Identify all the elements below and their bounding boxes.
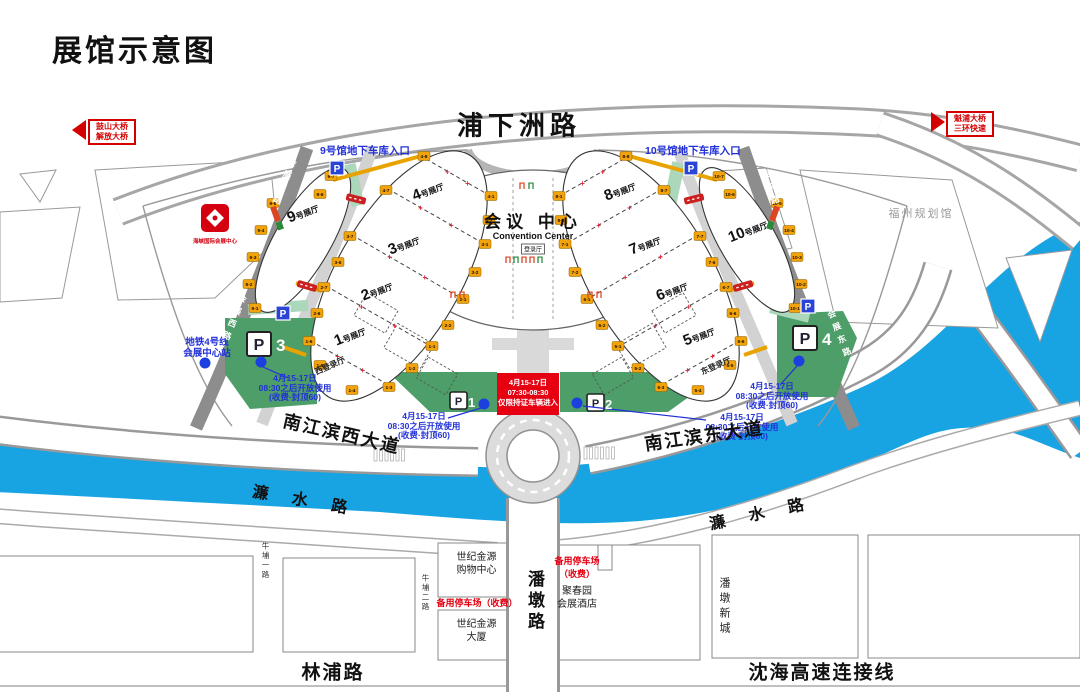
svg-text:Π: Π — [459, 290, 466, 300]
gate-tag: 4-7 — [380, 186, 392, 195]
gate-tag-number: 9-1 — [252, 306, 259, 312]
metro-line: 会展中心站 — [183, 348, 231, 359]
svg-text:Π: Π — [505, 255, 512, 265]
gate-tag: 8-7 — [658, 186, 670, 195]
convention-center-en: Convention Center — [493, 231, 574, 241]
gate-tag-number: 10-7 — [714, 174, 724, 180]
gate-tag: 10-2 — [795, 280, 807, 289]
building-tower: 世纪金源 大厦 — [438, 618, 515, 644]
p-lot-icon: P — [455, 396, 462, 408]
p-entrance-icon: P — [805, 302, 812, 313]
page-title: 展馆示意图 — [52, 26, 217, 70]
gate-tag-number: 7-7 — [697, 234, 704, 240]
gate-tag-number: 2-2 — [445, 323, 452, 329]
crossing-mark: + — [392, 321, 397, 330]
gate-tag: 1-3 — [383, 383, 395, 392]
gate-tag: 8-1 — [553, 192, 565, 201]
p-entrance-icon: P — [688, 164, 695, 175]
note-line: (收费·封顶60) — [717, 401, 827, 411]
p-entrance-icon: P — [280, 309, 287, 320]
gate-tag: 5-6 — [735, 337, 747, 346]
venue-logo-caption: 海峡国际会展中心 — [193, 237, 237, 245]
gate-tag-number: 3-1 — [482, 242, 489, 248]
garage-entrance-east-label: 10号馆地下车库入口 — [645, 143, 741, 158]
gate-tag: 7-7 — [694, 232, 706, 241]
crossing-mark: + — [465, 179, 470, 188]
parking-number-p4: 4 — [822, 330, 831, 350]
gate-tag: 5-1 — [612, 342, 624, 351]
sign-line: 三环快速 — [950, 124, 990, 134]
crossing-mark: + — [686, 302, 691, 311]
building-line: 世纪金源 — [438, 551, 515, 564]
crossing-mark: + — [623, 273, 628, 282]
crossing-mark: + — [600, 167, 605, 176]
gate-tag-number: 9-3 — [250, 255, 257, 261]
planning-hall-label: 福州规划馆 — [889, 205, 954, 221]
gate-tag-number: 8-7 — [661, 188, 668, 194]
parking-note-p3: 4月15-17日 08:30之后开放使用 (收费·封顶60) — [240, 374, 350, 403]
gate-tag-number: 10-1 — [790, 306, 800, 312]
crossing-mark: + — [580, 179, 585, 188]
gate-tag-number: 9-4 — [258, 228, 265, 234]
gate-tag-number: 2-6 — [314, 311, 321, 317]
gate-tag-number: 3-2 — [472, 270, 479, 276]
notice-line: 07:30-08:30 — [497, 388, 559, 398]
p-lot-icon: P — [800, 331, 811, 348]
gate-tag: 8-8 — [620, 152, 632, 161]
gate-tag: 10-6 — [724, 190, 736, 199]
roundabout — [486, 409, 580, 503]
building-line: （收费） — [535, 568, 619, 581]
gate-tag-number: 3-6 — [335, 260, 342, 266]
gate-tag-number: 6-6 — [730, 311, 737, 317]
svg-text:Π: Π — [596, 290, 603, 300]
convention-center-cn: 会议 中心 — [484, 208, 582, 233]
road-label-linpu: 林浦路 — [301, 658, 364, 685]
gate-tag: 10-3 — [791, 253, 803, 262]
central-plaza-road2 — [492, 338, 574, 350]
gate-tag: 1-2 — [406, 364, 418, 373]
gate-tag-number: 8-8 — [623, 154, 630, 160]
crossing-mark: + — [422, 273, 427, 282]
svg-text:Π: Π — [519, 181, 526, 191]
sign-line: 解放大桥 — [92, 132, 132, 142]
gate-tag-number: 2-7 — [321, 285, 328, 291]
direction-sign-east: 魁浦大桥 三环快速 — [946, 111, 994, 137]
gate-tag-number: 3-7 — [347, 234, 354, 240]
road-label-shenhai: 沈海高速连接线 — [748, 658, 895, 685]
gate-tag-number: 7-1 — [562, 242, 569, 248]
registration-mini-label: 登录厅 — [521, 244, 545, 255]
crossing-mark: + — [658, 253, 663, 262]
gate-tag-number: 10-4 — [784, 228, 794, 234]
gate-tag-number: 4-8 — [421, 154, 428, 160]
gate-tag: 3-2 — [469, 268, 481, 277]
building-shopping-center: 世纪金源 购物中心 — [438, 551, 515, 577]
crossing-mark: + — [653, 321, 658, 330]
backup-parking-label-2: 备用停车场 （收费） — [535, 555, 619, 581]
vertical-road-label: 潘墩新城 — [716, 577, 732, 637]
gate-tag: 7-6 — [706, 258, 718, 267]
crossing-mark: + — [449, 221, 454, 230]
gate-tag-number: 6-7 — [723, 285, 730, 291]
building-hotel: 聚春园 会展酒店 — [535, 585, 619, 611]
gate-tag: 6-7 — [720, 283, 732, 292]
building-line: 聚春园 — [535, 585, 619, 598]
gate-tag-number: 9-2 — [246, 282, 253, 288]
gate-tag-number: 5-3 — [658, 385, 665, 391]
p-entrance-icon: P — [334, 164, 341, 175]
crossing-mark: + — [359, 302, 364, 311]
sign-line: 鼓山大桥 — [92, 122, 132, 132]
gate-tag-number: 5-4 — [695, 388, 702, 394]
parking-note-p4: 4月15-17日 08:30之后开放使用 (收费·封顶60) — [717, 382, 827, 411]
building-line: 备用停车场 — [535, 555, 619, 568]
gate-tag-number: 1-2 — [409, 366, 416, 372]
gate-tag: 4-1 — [485, 192, 497, 201]
right-arrow-icon — [931, 112, 945, 132]
gate-tag: 5-2 — [632, 364, 644, 373]
gate-tag: 10-7 — [713, 172, 725, 181]
notice-line: 4月15-17日 — [497, 378, 559, 388]
vertical-road-label: 牛埔二路 — [420, 574, 431, 612]
note-line: (收费·封顶60) — [240, 393, 350, 403]
svg-text:Π: Π — [450, 290, 457, 300]
gate-tag: 1-6 — [303, 337, 315, 346]
gate-tag: 2-2 — [442, 321, 454, 330]
gate-tag-number: 4-7 — [383, 188, 390, 194]
gate-tag: 9-1 — [249, 304, 261, 313]
gate-tag: 1-1 — [426, 342, 438, 351]
gate-tag-number: 6-2 — [599, 323, 606, 329]
parking-number-p3: 3 — [276, 336, 285, 356]
crossing-mark: + — [445, 167, 450, 176]
vertical-road-label: 牛埔一路 — [260, 542, 271, 580]
gate-tag: 9-2 — [243, 280, 255, 289]
p-lot-icon: P — [254, 337, 265, 354]
svg-text:Π: Π — [529, 255, 536, 265]
crossing-mark: + — [627, 204, 632, 213]
gate-tag-number: 4-1 — [488, 194, 495, 200]
gate-tag-number: 5-2 — [635, 366, 642, 372]
vertical-road-label: 潘墩路 — [522, 570, 547, 633]
gate-tag-number: 10-2 — [796, 282, 806, 288]
parking-number-p1: 1 — [468, 395, 475, 410]
svg-text:Π: Π — [528, 181, 535, 191]
gate-tag: 9-4 — [255, 226, 267, 235]
left-arrow-icon — [72, 120, 86, 140]
gate-tag-number: 1-6 — [306, 339, 313, 345]
crossing-mark: + — [685, 366, 690, 375]
parking-number-p2: 2 — [605, 397, 612, 412]
building-line: 会展酒店 — [535, 598, 619, 611]
gate-tag: 10-1 — [789, 304, 801, 313]
exhibition-map: ++++++++++++++++++++ 9-19-29-39-49-59-69… — [0, 0, 1080, 692]
svg-text:Π: Π — [537, 255, 544, 265]
gate-tag-number: 7-2 — [572, 270, 579, 276]
gate-tag-number: 1-3 — [386, 385, 393, 391]
gate-tag: 7-2 — [569, 268, 581, 277]
notice-line: 仅限持证车辆进入 — [497, 398, 559, 408]
gate-tag: 6-2 — [596, 321, 608, 330]
gate-tag: 3-6 — [332, 258, 344, 267]
sign-line: 魁浦大桥 — [950, 114, 990, 124]
gate-tag: 3-1 — [479, 240, 491, 249]
crossing-mark: + — [360, 366, 365, 375]
building-line: 世纪金源 — [438, 618, 515, 631]
gate-tag: 6-6 — [727, 309, 739, 318]
svg-text:Π: Π — [513, 255, 520, 265]
gate-tag: 3-7 — [344, 232, 356, 241]
gate-tag: 5-3 — [655, 383, 667, 392]
backup-parking-label: 备用停车场（收费） — [425, 597, 529, 610]
gate-tag-number: 7-6 — [709, 260, 716, 266]
gate-tag-number: 5-6 — [738, 339, 745, 345]
crossing-mark: + — [596, 221, 601, 230]
gate-tag-number: 5-1 — [615, 344, 622, 350]
gate-tag-number: 10-3 — [792, 255, 802, 261]
gate-tag-number: 10-6 — [725, 192, 735, 198]
svg-text:Π: Π — [587, 290, 594, 300]
gate-tag-number: 9-6 — [317, 192, 324, 198]
road-label-puxiazhou: 浦下洲路 — [457, 106, 581, 143]
crossing-mark: + — [418, 204, 423, 213]
gate-tag: 5-4 — [692, 386, 704, 395]
restricted-access-notice: 4月15-17日 07:30-08:30 仅限持证车辆进入 — [497, 373, 559, 415]
building-line: 购物中心 — [438, 564, 515, 577]
direction-sign-west: 鼓山大桥 解放大桥 — [88, 119, 136, 145]
gate-tag: 2-7 — [318, 283, 330, 292]
gate-tag: 10-4 — [783, 226, 795, 235]
gate-tag: 4-8 — [418, 152, 430, 161]
gate-tag: 2-6 — [311, 309, 323, 318]
gate-tag: 9-3 — [247, 253, 259, 262]
gate-tag-number: 8-1 — [556, 194, 563, 200]
gate-tag-number: 1-1 — [429, 344, 436, 350]
garage-entrance-west-label: 9号馆地下车库入口 — [320, 143, 410, 158]
svg-text:Π: Π — [521, 255, 528, 265]
gate-tag: 9-6 — [314, 190, 326, 199]
venue-logo-icon — [201, 204, 229, 232]
building-line: 大厦 — [438, 631, 515, 644]
